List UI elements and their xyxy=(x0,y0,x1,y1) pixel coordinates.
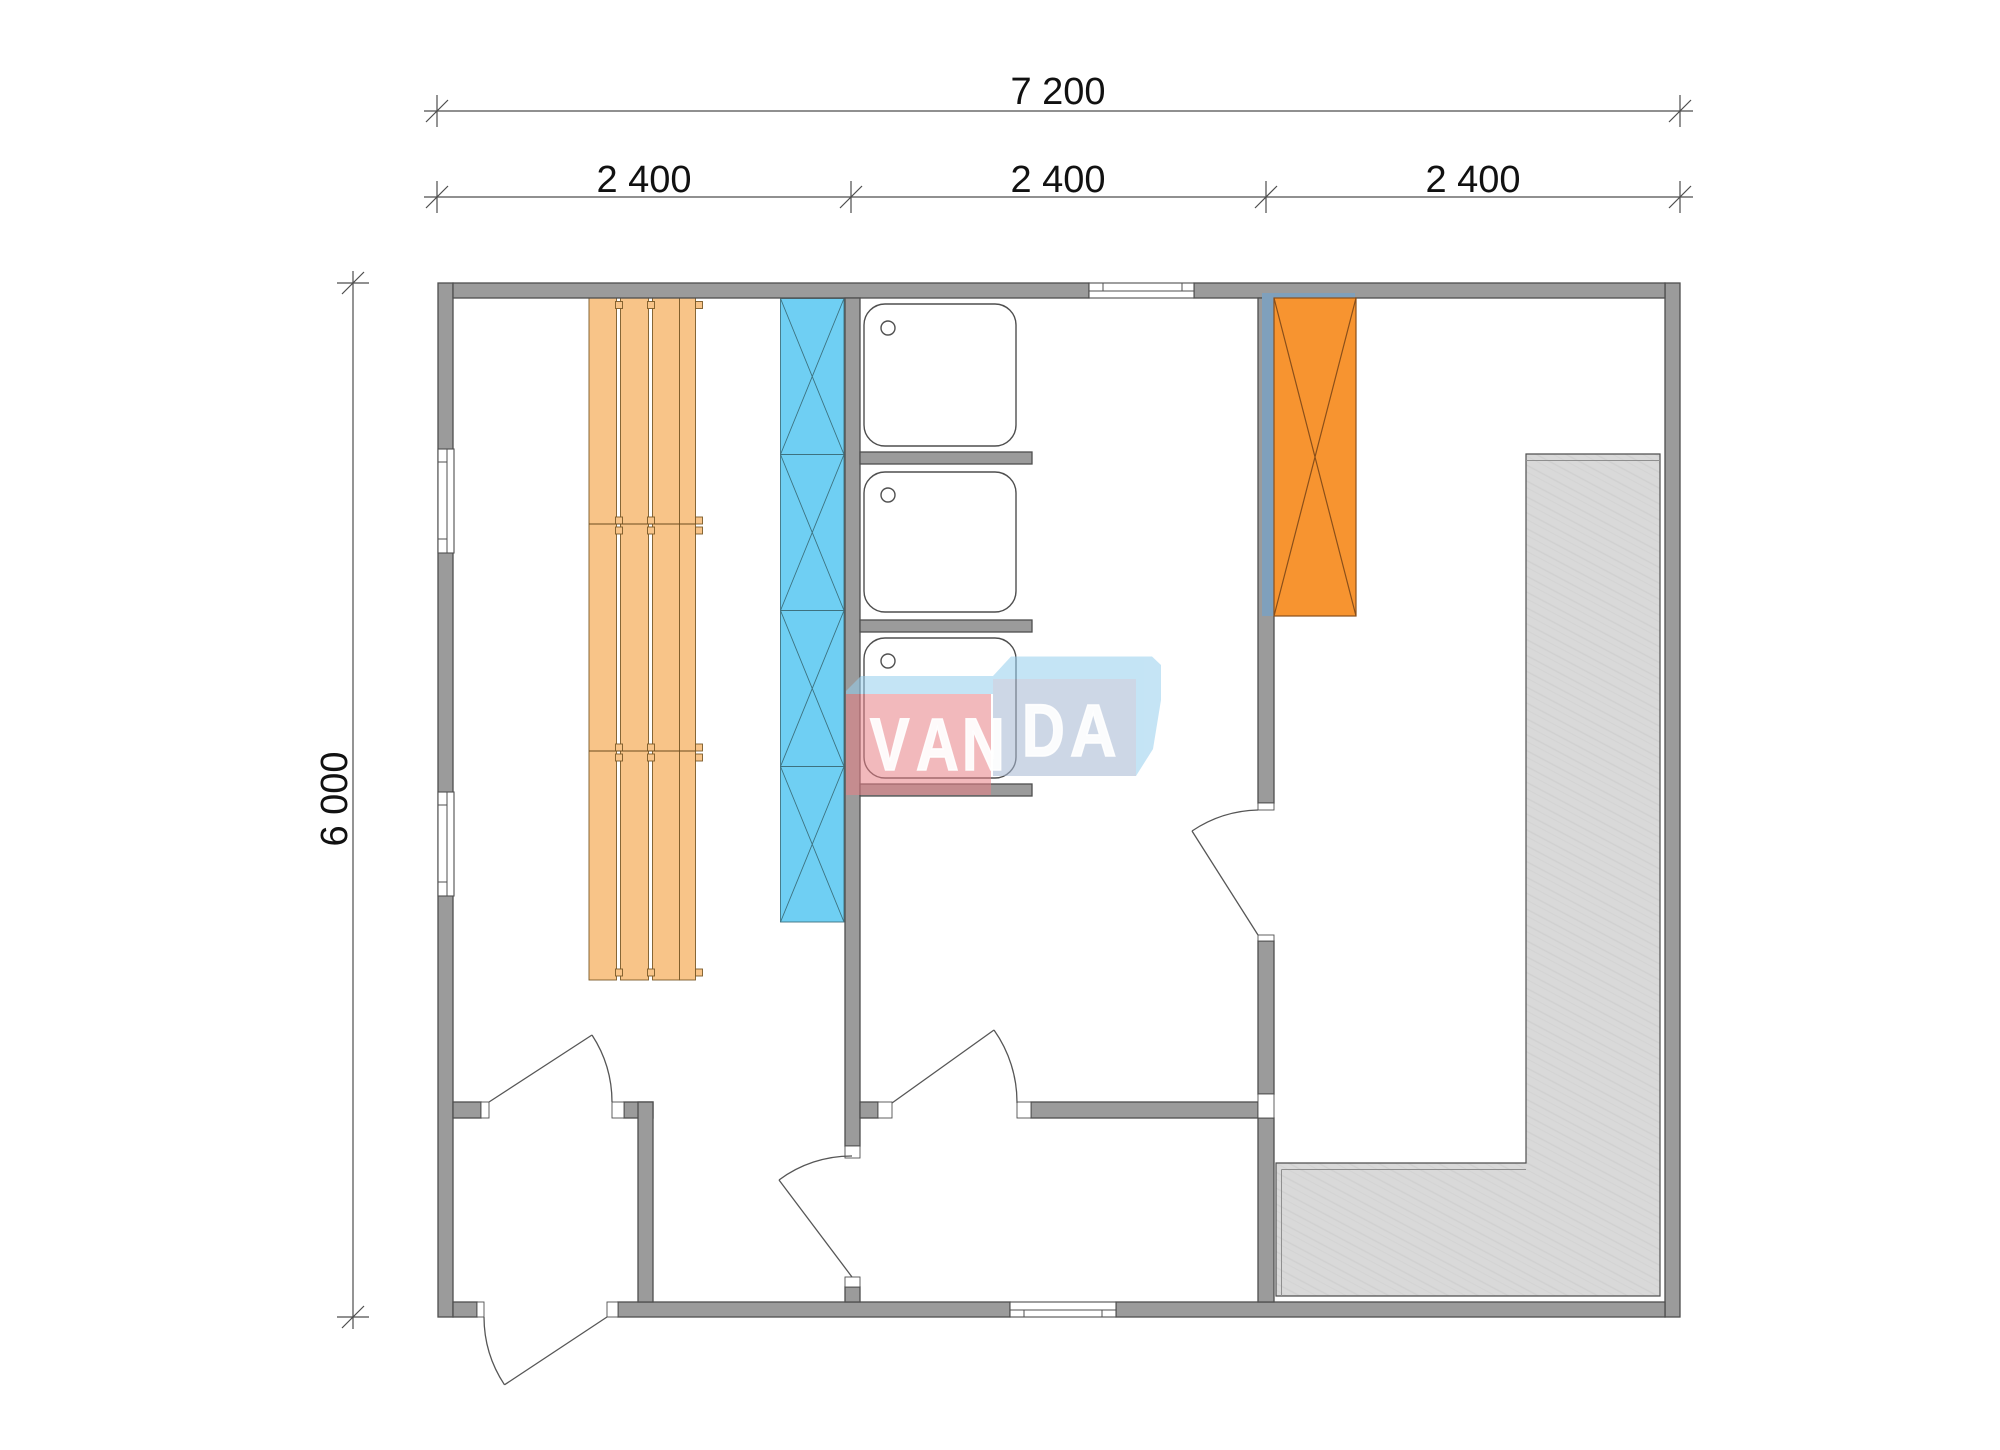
svg-text:N: N xyxy=(962,704,1005,787)
svg-text:V: V xyxy=(870,704,910,787)
svg-text:2 400: 2 400 xyxy=(1010,159,1105,201)
svg-text:A: A xyxy=(916,704,959,787)
svg-text:A: A xyxy=(1070,689,1116,772)
svg-text:2 400: 2 400 xyxy=(1425,159,1520,201)
svg-text:6 000: 6 000 xyxy=(314,751,356,846)
svg-text:D: D xyxy=(1022,690,1065,773)
svg-text:7 200: 7 200 xyxy=(1010,71,1105,113)
svg-text:2 400: 2 400 xyxy=(596,159,691,201)
